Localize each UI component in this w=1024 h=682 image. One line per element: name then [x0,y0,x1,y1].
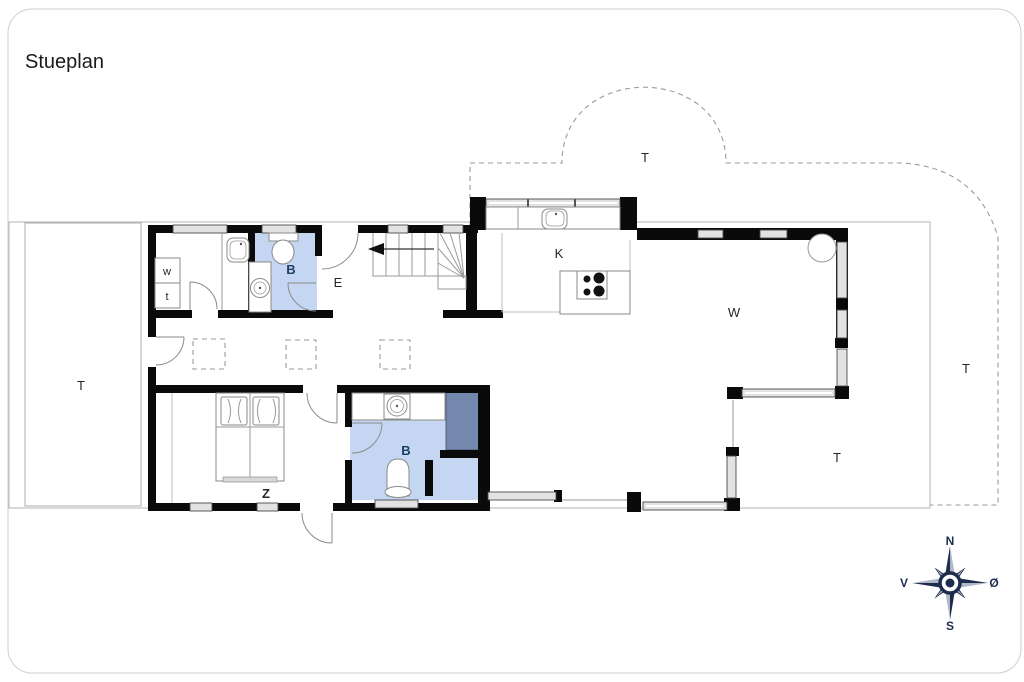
toilet1-bowl [272,240,294,264]
floorplan-drawing: Stueplan T T T T w t B B E K W Z N S V [0,0,1024,682]
label-dryer: t [165,291,168,303]
bedroom-exterior-door-arc [302,513,332,543]
label-terrace-left: T [77,378,85,393]
label-bedroom: Z [262,486,270,501]
compass-east-label: Ø [989,576,998,590]
shower-cabin [446,392,479,450]
pillow-left [221,397,247,425]
bedroom-door-arc [307,393,337,423]
double-bed [216,393,284,482]
compass-north-label: N [946,534,955,548]
label-bathroom1: B [286,262,295,277]
compass-south-label: S [946,619,954,633]
floorplan-sheet: Stueplan T T T T w t B B E K W Z N S V [0,0,1024,682]
label-entry: E [334,275,343,290]
terrace-dashed-outline [470,87,998,505]
bed-footboard [223,477,277,482]
wood-stove [808,234,836,262]
toilet2-bowl [385,487,411,498]
label-terrace-top: T [641,150,649,165]
page-frame [8,9,1021,673]
compass-rose: N S V Ø [900,534,999,633]
entrance-door-arc [322,233,358,269]
staircase [368,233,466,289]
terrace-left-outline [25,223,141,506]
page-title: Stueplan [25,51,104,73]
label-washer: w [162,266,171,278]
label-terrace-se: T [833,450,841,465]
compass-center-dot [946,579,955,588]
laundry-door-arc [190,282,217,310]
stair-direction-arrow-icon [368,243,384,255]
label-kitchen: K [555,246,564,261]
corridor-dashed-squares [193,339,410,369]
label-bathroom2: B [401,443,410,458]
label-living: W [728,305,741,320]
west-terrace-door-arc [156,337,184,365]
label-terrace-right: T [962,361,970,376]
compass-west-label: V [900,576,908,590]
